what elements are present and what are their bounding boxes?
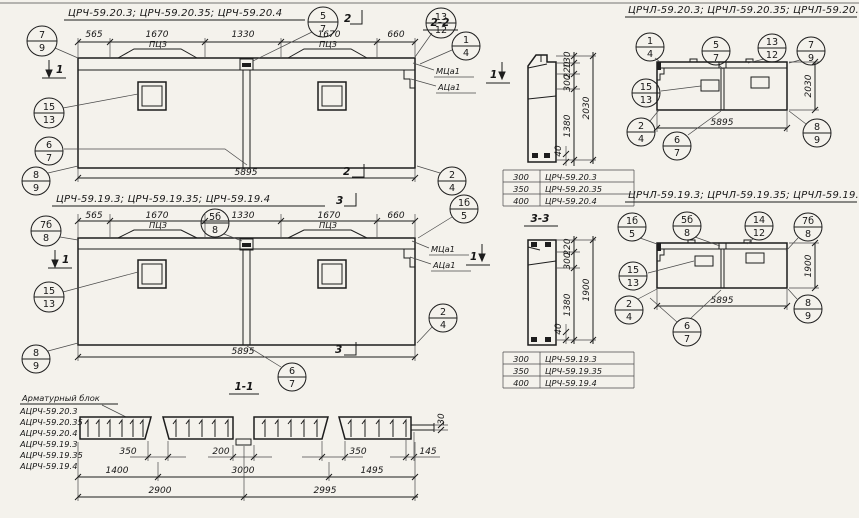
callout-top: 8 xyxy=(33,170,39,181)
section2-cut-top xyxy=(350,10,362,24)
opening-inner xyxy=(322,86,342,106)
callout-5-7: 57 xyxy=(308,7,338,37)
callout-bottom: 5 xyxy=(461,211,467,222)
end-step-detail xyxy=(404,70,415,88)
callout-bottom: 5 xyxy=(629,229,635,240)
callout-bottom: 8 xyxy=(43,233,49,244)
dim-label: 2900 xyxy=(149,486,172,496)
opening xyxy=(695,256,713,266)
pcz-label: ПЦЗ xyxy=(149,220,168,230)
callout-13-12: 1312 xyxy=(426,8,456,38)
callout-bottom: 7 xyxy=(46,153,52,164)
dim-label: 1400 xyxy=(106,466,129,476)
callout-7b-8: 7б8 xyxy=(31,216,61,246)
table-cell: ЦРЧ-59.19.3 xyxy=(545,354,597,364)
callout-top: 6 xyxy=(674,135,680,146)
joint-drop-key xyxy=(236,439,251,445)
table-cell: ЦРЧ-59.20.3 xyxy=(545,172,597,182)
callout-top: 2 xyxy=(638,121,644,132)
callout-7-9: 79 xyxy=(797,37,825,65)
dim-label: 300 xyxy=(563,252,573,269)
rebar-marks xyxy=(85,420,143,437)
callout-bottom: 4 xyxy=(638,134,644,145)
section-2-2-table: 300 ЦРЧ-59.20.3 350 ЦРЧ-59.20.35 400 ЦРЧ… xyxy=(503,170,634,206)
callout-8-9: 89 xyxy=(22,167,50,195)
callout-14-12: 1412 xyxy=(745,212,773,240)
callout-bottom: 12 xyxy=(766,50,778,61)
section2-marker-bottom: 2 xyxy=(343,166,350,178)
anchor-mark xyxy=(545,337,551,342)
anchor-mark xyxy=(531,337,537,342)
callout-bottom: 8 xyxy=(805,229,811,240)
table-cell: 400 xyxy=(513,196,529,206)
dim-label: 5895 xyxy=(711,118,734,128)
table-cell: 350 xyxy=(513,184,529,194)
callout-top: 2 xyxy=(440,307,446,318)
callout-top: 1б xyxy=(458,198,470,209)
callout-top: 15 xyxy=(640,82,652,93)
callout-top: 5 xyxy=(713,40,719,51)
table-cell: ЦРЧ-59.20.35 xyxy=(545,184,602,194)
pcz-label: ПЦЗ xyxy=(149,39,168,49)
callout-bottom: 8 xyxy=(212,225,218,236)
section-1-1: 1-1 Арматурный блок АЦРЧ-59.20.3 АЦРЧ-59… xyxy=(19,381,448,501)
callout-bottom: 9 xyxy=(805,311,811,322)
dim-label: 40 xyxy=(554,323,564,335)
table-cell: 300 xyxy=(513,172,529,182)
callout-top: 8 xyxy=(805,298,811,309)
callout-top: 1 xyxy=(647,36,653,47)
callout-bottom: 7 xyxy=(674,148,680,159)
callout-15-13: 1513 xyxy=(632,79,660,107)
cross-section-profile xyxy=(528,240,556,345)
callout-top: 1б xyxy=(626,216,638,227)
callout-top: 13 xyxy=(766,37,778,48)
section2-marker-top: 2 xyxy=(344,13,351,25)
callout-top: 15 xyxy=(627,265,639,276)
callout-bottom: 4 xyxy=(449,183,455,194)
dim-label: 30 xyxy=(437,413,447,425)
row2-elevation: ЦРЧ-59.19.3; ЦРЧ-59.19.35; ЦРЧ-59.19.4 3… xyxy=(48,193,490,367)
dim-label: 300 xyxy=(563,74,573,91)
dim-label: 350 xyxy=(119,447,136,457)
callout-bottom: 13 xyxy=(43,299,55,310)
callout-15-13: 1513 xyxy=(34,98,64,128)
section3-cut-top xyxy=(344,193,356,206)
callout-top: 15 xyxy=(43,102,55,113)
callout-top: 1 xyxy=(463,35,469,46)
callout-15-13: 1513 xyxy=(619,262,647,290)
callout-bottom: 9 xyxy=(33,183,39,194)
callout-2-4: 24 xyxy=(438,167,466,195)
rebar-marks xyxy=(262,420,317,437)
elev2-title: ЦРЧЛ-59.19.3; ЦРЧЛ-59.19.35; ЦРЧЛ-59.19.… xyxy=(628,190,859,201)
dim-label: 1330 xyxy=(232,30,255,40)
table-cell: ЦРЧ-59.19.35 xyxy=(545,366,602,376)
callout-6-7: 67 xyxy=(35,137,63,165)
cut-arrowhead xyxy=(52,260,58,267)
dim-label: 2995 xyxy=(314,486,337,496)
cross-section-profile xyxy=(528,55,556,162)
callout-5-7: 57 xyxy=(702,37,730,65)
anchor-mark xyxy=(544,153,550,158)
callout-8-9: 89 xyxy=(794,295,822,323)
block-mark: АЦРЧ-59.19.35 xyxy=(19,450,83,460)
row2-title: ЦРЧ-59.19.3; ЦРЧ-59.19.35; ЦРЧ-59.19.4 xyxy=(56,194,270,205)
dim-label: 2030 xyxy=(804,74,814,97)
extension-lines xyxy=(78,38,415,57)
pcz-label: ПЦЗ xyxy=(319,220,338,230)
callout-bottom: 9 xyxy=(39,43,45,54)
joint-key-fill xyxy=(242,243,251,247)
callout-5b-8: 5б8 xyxy=(673,212,701,240)
panel-outline xyxy=(657,62,787,110)
dim-label: 1380 xyxy=(563,114,573,137)
section3-cut-bottom xyxy=(344,342,356,355)
corner-flag xyxy=(657,243,661,251)
callout-top: 8 xyxy=(33,348,39,359)
callout-top: 6 xyxy=(289,366,295,377)
callout-top: 14 xyxy=(753,215,765,226)
callout-1-4: 14 xyxy=(452,32,480,60)
dim-label: 2030 xyxy=(582,96,592,119)
section1-marker: 1 xyxy=(490,69,497,81)
section1-marker: 1 xyxy=(470,251,477,263)
callout-7b-8: 7б8 xyxy=(794,213,822,241)
corner-flag xyxy=(657,62,661,70)
callout-top: 6 xyxy=(684,321,690,332)
leader xyxy=(413,63,434,70)
table-cell: 300 xyxy=(513,354,529,364)
callout-bottom: 13 xyxy=(43,115,55,126)
opening xyxy=(701,80,719,91)
section2-cut-bottom xyxy=(352,164,364,177)
section-3-3-label: 3-3 xyxy=(531,213,550,225)
row1-title: ЦРЧ-59.20.3; ЦРЧ-59.20.35; ЦРЧ-59.20.4 xyxy=(68,8,282,19)
block-mark: АЦРЧ-59.19.3 xyxy=(19,439,77,449)
callout-bottom: 12 xyxy=(435,25,447,36)
block-mark: АЦРЧ-59.20.3 xyxy=(19,406,77,416)
callout-bottom: 13 xyxy=(627,278,639,289)
cut-arrowhead xyxy=(479,254,485,261)
technical-drawing: ЦРЧ-59.20.3; ЦРЧ-59.20.35; ЦРЧ-59.20.4 2… xyxy=(0,0,859,518)
elev1-mirrored: ЦРЧЛ-59.20.3; ЦРЧЛ-59.20.35; ЦРЧЛ-59.20.… xyxy=(625,5,859,135)
joint-key xyxy=(719,243,726,249)
anchor-mark xyxy=(531,242,537,247)
section1-marker: 1 xyxy=(62,254,69,266)
callout-top: 2 xyxy=(449,170,455,181)
callout-top: 7б xyxy=(40,220,52,231)
callout-top: 7 xyxy=(808,40,814,51)
table-cell: 400 xyxy=(513,378,529,388)
callout-1-4: 14 xyxy=(636,33,664,61)
callout-bottom: 13 xyxy=(640,95,652,106)
aca1-label: АЦа1 xyxy=(432,260,455,270)
callout-top: 8 xyxy=(814,122,820,133)
dim-label: 660 xyxy=(387,30,404,40)
callout-top: 5б xyxy=(681,215,693,226)
drawing-sheet: ЦРЧ-59.20.3; ЦРЧ-59.20.35; ЦРЧ-59.20.4 2… xyxy=(0,0,859,518)
callout-bottom: 4 xyxy=(626,312,632,323)
callout-2-4: 24 xyxy=(627,118,655,146)
dim-label: 1495 xyxy=(361,466,384,476)
section3-marker-top: 3 xyxy=(336,195,343,207)
block-mark: АЦРЧ-59.20.35 xyxy=(19,417,83,427)
callout-5b-8: 5б8 xyxy=(201,209,229,237)
opening xyxy=(751,77,769,88)
rebar-marks xyxy=(348,420,406,437)
block-mark: АЦРЧ-59.20.4 xyxy=(19,428,77,438)
callout-8-9: 89 xyxy=(803,119,831,147)
callout-bottom: 7 xyxy=(320,24,326,35)
dim-label: 565 xyxy=(85,30,102,40)
callout-top: 7 xyxy=(39,30,45,41)
opening-inner xyxy=(142,264,162,284)
dim-label: 5895 xyxy=(235,168,258,178)
lifting-loop xyxy=(688,240,695,243)
lifting-loop-zone xyxy=(288,49,367,58)
callout-1b-5: 1б5 xyxy=(618,213,646,241)
dim-label: 1900 xyxy=(582,278,592,301)
cut-arrowhead xyxy=(46,70,52,77)
callout-6-7: 67 xyxy=(278,363,306,391)
dim-label: 3000 xyxy=(232,466,255,476)
section-3-3-table: 300 ЦРЧ-59.19.3 350 ЦРЧ-59.19.35 400 ЦРЧ… xyxy=(503,352,634,388)
dim-label: 145 xyxy=(419,447,436,457)
cut-arrowhead xyxy=(499,72,505,79)
dim-label: 5895 xyxy=(711,296,734,306)
section-1-1-label: 1-1 xyxy=(235,381,254,393)
lifting-loop xyxy=(746,59,753,62)
rebar-strip-pieces xyxy=(80,417,411,439)
callout-top: 5 xyxy=(320,11,326,22)
section-3-3: 3-3 220 300 1380 1900 40 300 ЦРЧ-59.19.3… xyxy=(503,213,634,388)
lifting-loop-zone xyxy=(288,230,367,238)
callout-bottom: 8 xyxy=(684,228,690,239)
leader xyxy=(410,257,431,264)
callout-top: 6 xyxy=(46,140,52,151)
lifting-loop-zone xyxy=(118,230,197,238)
anchor-mark xyxy=(532,153,538,158)
callout-bottom: 7 xyxy=(713,53,719,64)
dim-label: 1900 xyxy=(804,254,814,277)
joint-key-fill xyxy=(242,63,251,67)
opening-inner xyxy=(142,86,162,106)
callout-leaders xyxy=(638,237,798,322)
callout-2-4: 24 xyxy=(615,296,643,324)
callout-bottom: 9 xyxy=(814,135,820,146)
callout-bottom: 4 xyxy=(647,49,653,60)
callout-bottom: 4 xyxy=(463,48,469,59)
callout-top: 5б xyxy=(209,212,221,223)
callout-top: 7б xyxy=(802,216,814,227)
mca1-label: МЦа1 xyxy=(436,66,460,76)
dim-label: 350 xyxy=(349,447,366,457)
elev2-mirrored: ЦРЧЛ-59.19.3; ЦРЧЛ-59.19.35; ЦРЧЛ-59.19.… xyxy=(625,190,859,322)
table-cell: ЦРЧ-59.19.4 xyxy=(545,378,597,388)
callout-bottom: 12 xyxy=(753,228,765,239)
dim-label: 40 xyxy=(554,145,564,157)
callout-bottom: 4 xyxy=(440,320,446,331)
panel-outline xyxy=(78,58,415,168)
leader xyxy=(102,405,126,417)
dim-label: 200 xyxy=(212,447,229,457)
extension-lines xyxy=(148,432,414,461)
section1-marker: 1 xyxy=(56,64,63,76)
callout-2-4: 24 xyxy=(429,304,457,332)
table-cell: ЦРЧ-59.20.4 xyxy=(545,196,597,206)
block-mark: АЦРЧ-59.19.4 xyxy=(19,461,77,471)
callout-7-9: 79 xyxy=(27,26,57,56)
dim-label: 660 xyxy=(387,211,404,221)
callout-6-7: 67 xyxy=(673,318,701,346)
opening-inner xyxy=(322,264,342,284)
dim-label: 1380 xyxy=(563,293,573,316)
pcz-label: ПЦЗ xyxy=(319,39,338,49)
dim-label: 1330 xyxy=(232,211,255,221)
elev1-title: ЦРЧЛ-59.20.3; ЦРЧЛ-59.20.35; ЦРЧЛ-59.20.… xyxy=(628,5,859,16)
callout-bottom: 9 xyxy=(808,53,814,64)
callout-1b-5: 1б5 xyxy=(450,195,478,223)
profile-inner-lines xyxy=(528,247,556,265)
callout-13-12: 1312 xyxy=(758,34,786,62)
callout-8-9: 89 xyxy=(22,345,50,373)
anchor-mark xyxy=(545,242,551,247)
table-cell: 350 xyxy=(513,366,529,376)
callout-15-13: 1513 xyxy=(34,282,64,312)
mca1-label: МЦа1 xyxy=(431,244,455,254)
callout-6-7: 67 xyxy=(663,132,691,160)
callout-top: 15 xyxy=(43,286,55,297)
callout-top: 2 xyxy=(626,299,632,310)
panel-outline xyxy=(78,238,415,345)
lifting-loop xyxy=(690,59,697,62)
lifting-loop-zone xyxy=(118,49,197,58)
callout-bottom: 9 xyxy=(33,361,39,372)
aca1-label: АЦа1 xyxy=(437,82,460,92)
section3-marker-bottom: 3 xyxy=(335,344,342,356)
callout-bottom: 7 xyxy=(289,379,295,390)
opening xyxy=(746,253,764,263)
callout-bottom: 7 xyxy=(684,334,690,345)
dim-label: 565 xyxy=(85,211,102,221)
thin-tail xyxy=(411,423,434,432)
callout-top: 13 xyxy=(435,12,447,23)
extension-lines xyxy=(434,425,448,430)
rebar-marks xyxy=(173,420,228,437)
rebar-block-title: Арматурный блок xyxy=(21,393,100,403)
